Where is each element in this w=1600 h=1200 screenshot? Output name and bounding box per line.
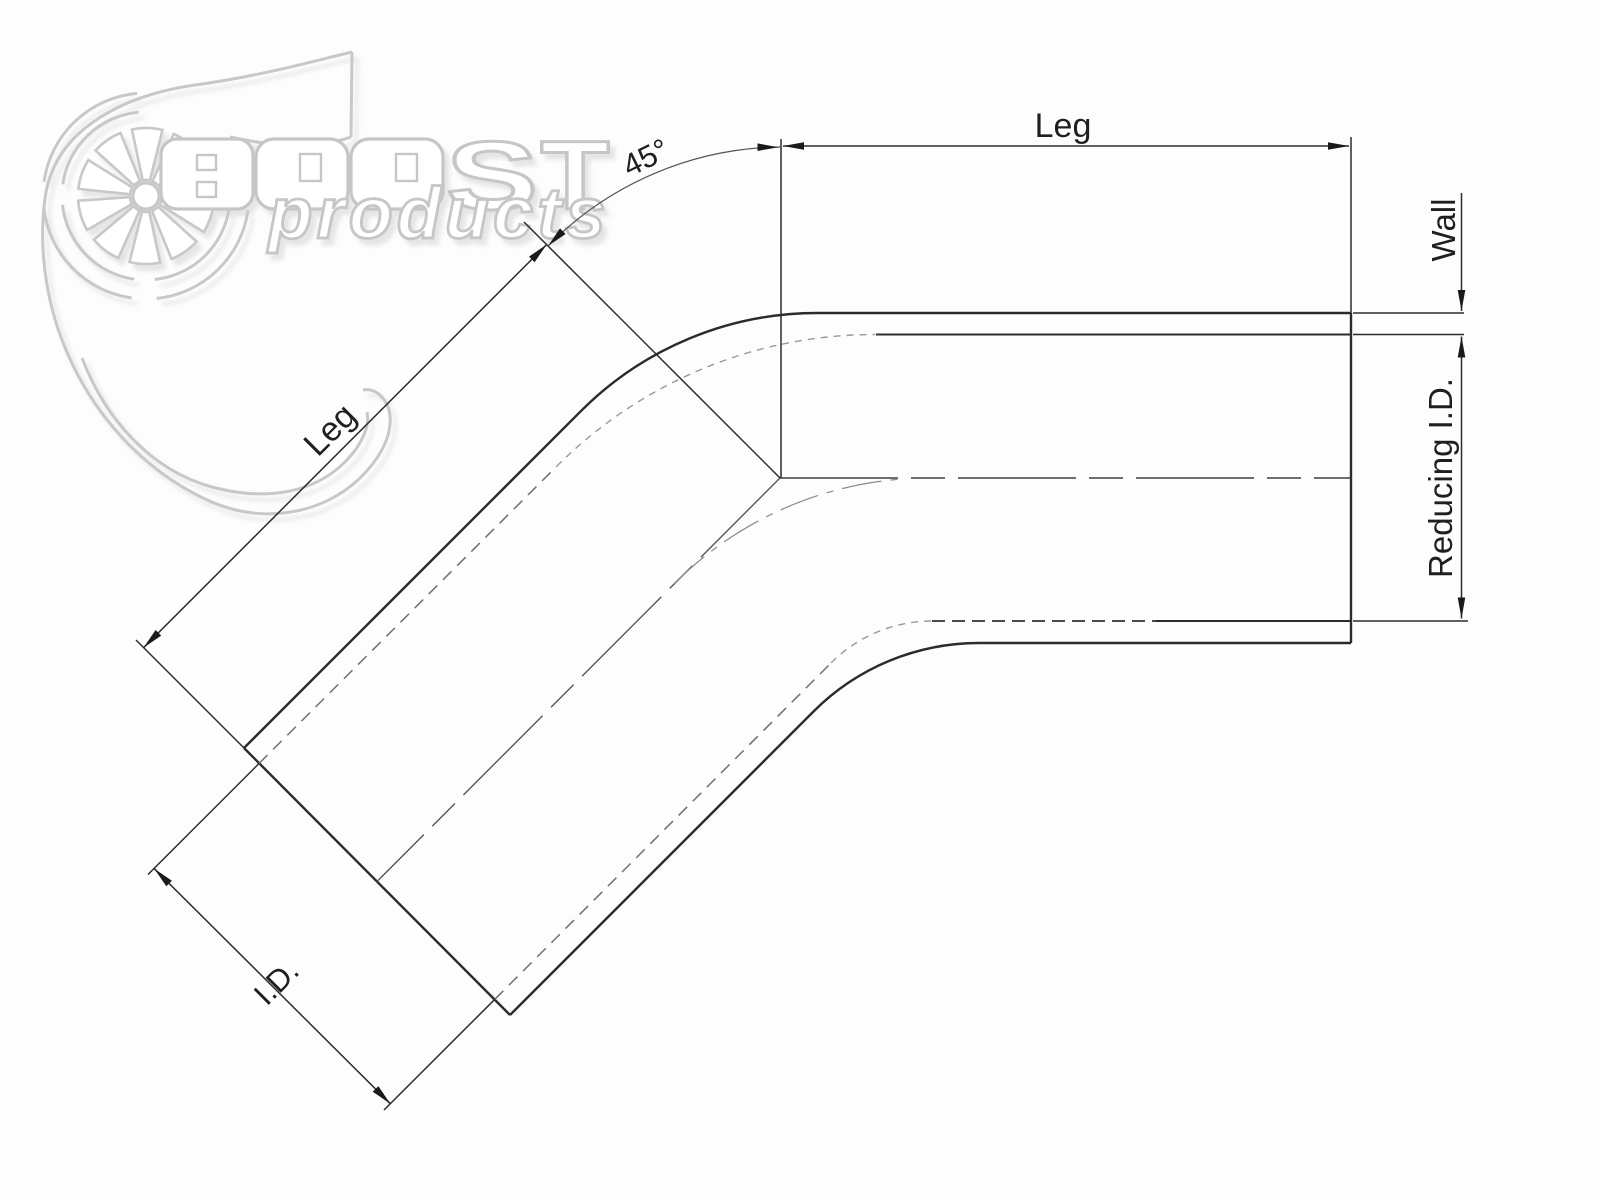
- svg-text:45°: 45°: [617, 132, 674, 184]
- svg-text:Wall: Wall: [1425, 199, 1462, 262]
- svg-text:Reducing I.D.: Reducing I.D.: [1422, 378, 1459, 578]
- svg-text:I.D.: I.D.: [247, 953, 306, 1012]
- svg-text:Leg: Leg: [1035, 107, 1092, 145]
- svg-text:products: products: [267, 174, 606, 254]
